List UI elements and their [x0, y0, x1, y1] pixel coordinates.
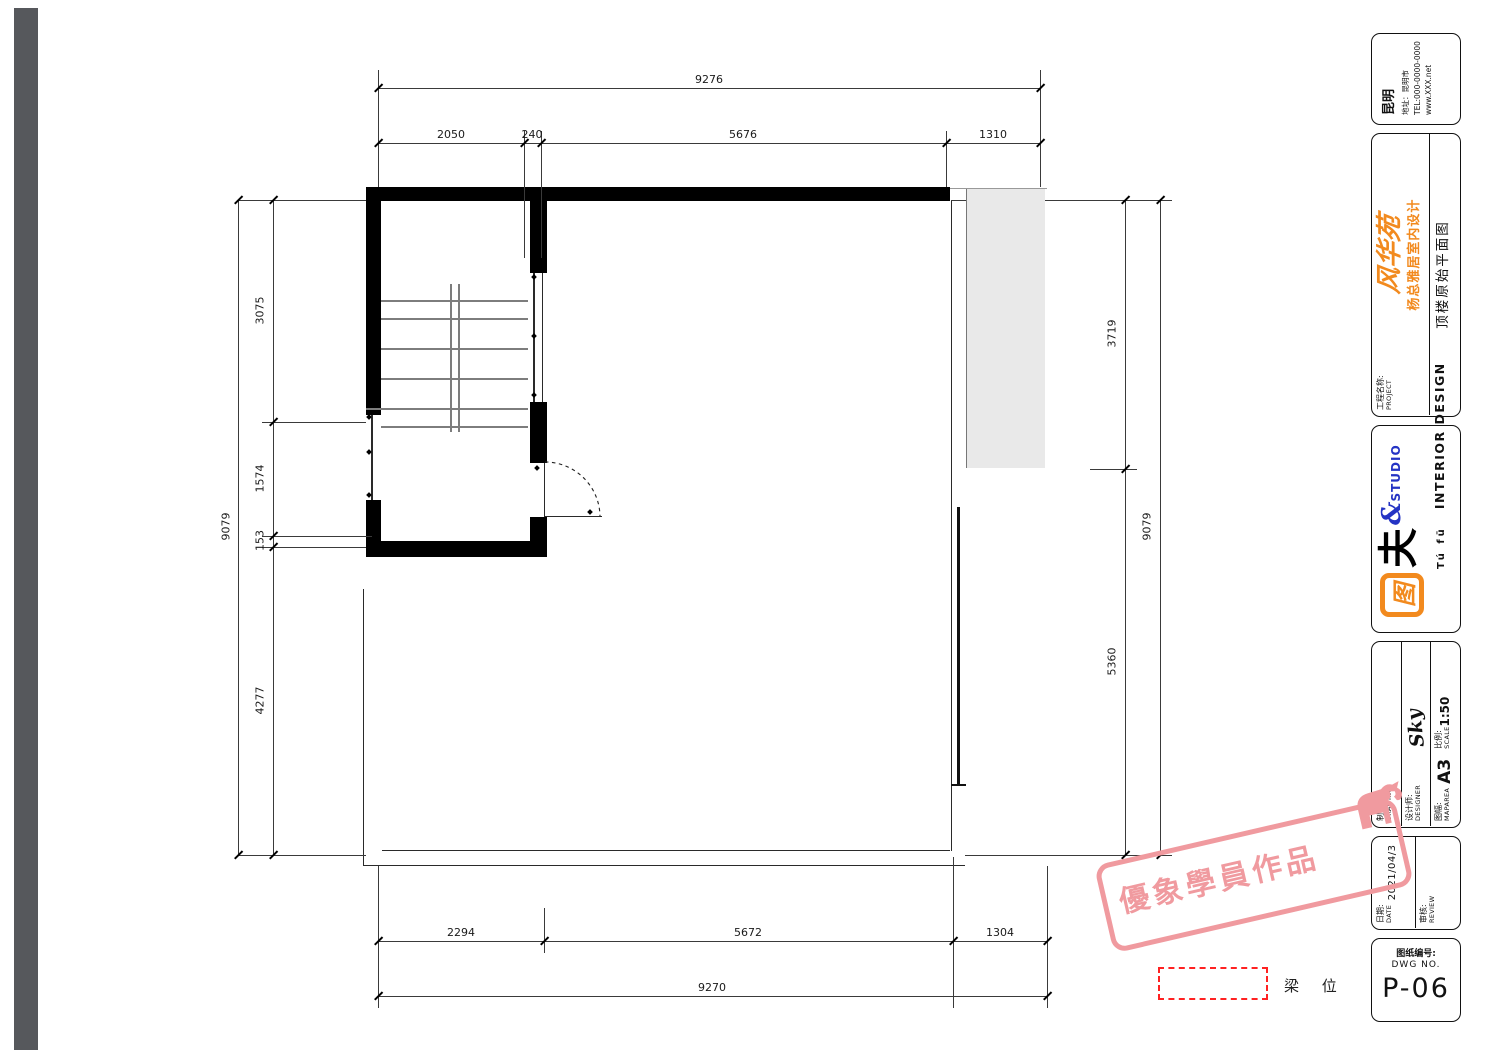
- scale-label: 比例:SCALE: [1431, 726, 1459, 753]
- scale-value: 1:50: [1438, 697, 1459, 727]
- stair-line: [381, 426, 528, 428]
- dim-top-seg: 1310: [963, 128, 1023, 141]
- dwg-no-value: P-06: [1372, 973, 1460, 1004]
- dim-right-overall: 9079: [1141, 497, 1154, 557]
- plan-line: [951, 784, 966, 786]
- dimension-line: [378, 88, 1041, 89]
- company-web: www.XXX.net: [1423, 34, 1435, 115]
- wall-segment: [366, 500, 381, 541]
- project-name: 杨总雅居室内设计: [1403, 134, 1422, 375]
- wall-segment: [366, 187, 950, 201]
- dimension-line: [953, 857, 954, 1008]
- plan-line: [951, 201, 952, 851]
- dimension-line: [1160, 200, 1161, 855]
- date-label: 日期:DATE: [1373, 904, 1415, 928]
- dim-left-seg: 1574: [254, 449, 267, 509]
- stair-line: [381, 300, 528, 302]
- dimension-line: [378, 143, 1041, 144]
- plan-line: [371, 415, 373, 500]
- company-address: 地址：昆明市: [1400, 34, 1412, 115]
- dimension-line: [238, 200, 239, 855]
- ampersand-glyph: &: [1377, 502, 1407, 525]
- dim-left-overall: 9079: [220, 497, 233, 557]
- dimension-line: [524, 131, 525, 258]
- dimension-line: [1090, 469, 1137, 470]
- logo-box: 图 夫 &STUDIO Tú fū INTERIOR DESIGN: [1371, 425, 1461, 633]
- dim-bottom-overall: 9270: [682, 981, 742, 994]
- dimension-line: [238, 200, 366, 201]
- maparea-value: A3: [1435, 759, 1459, 784]
- stair-line: [366, 408, 528, 410]
- plan-line: [382, 850, 950, 851]
- dimension-line: [1047, 866, 1048, 1008]
- dimension-line: [541, 131, 542, 258]
- dwg-no-label-cn: 图纸编号:: [1372, 946, 1460, 959]
- stair-line: [381, 348, 528, 350]
- dimension-line: [378, 941, 1048, 942]
- wall-segment: [530, 402, 547, 463]
- drawing-sheet: 9276 2050 240 5676 1310 9079 3075 1574 1…: [0, 0, 1500, 1061]
- maparea-label: 图幅:MAPAREA: [1431, 788, 1459, 826]
- stair-line: [450, 284, 452, 432]
- wall-segment: [366, 541, 547, 557]
- beam-legend-swatch: [1158, 967, 1268, 1000]
- dimension-line: [238, 855, 366, 856]
- dim-right-seg: 5360: [1106, 632, 1119, 692]
- dim-left-seg: 4277: [254, 671, 267, 731]
- void-area: [966, 189, 1045, 468]
- dim-top-seg: 5676: [713, 128, 773, 141]
- wall-segment: [530, 517, 547, 557]
- dwg-no-label-en: DWG NO.: [1372, 960, 1460, 970]
- logo-pinyin: Tú fū: [1436, 526, 1447, 569]
- dim-left-seg: 3075: [254, 281, 267, 341]
- plan-line: [363, 865, 965, 866]
- company-tel: TEL:000-0000-0000: [1412, 34, 1424, 115]
- dim-top-seg: 240: [502, 128, 562, 141]
- dimension-line: [1125, 200, 1126, 855]
- dim-top-overall: 9276: [679, 73, 739, 86]
- company-box: 昆明 地址：昆明市 TEL:000-0000-0000 www.XXX.net: [1371, 33, 1461, 125]
- dimension-line: [262, 547, 366, 548]
- dim-bottom-seg: 2294: [431, 926, 491, 939]
- dimension-line: [262, 422, 366, 423]
- dim-bottom-seg: 5672: [718, 926, 778, 939]
- plan-line: [957, 507, 960, 785]
- logo-glyph: 夫: [1373, 528, 1429, 568]
- logo-mark-icon: 图: [1380, 573, 1424, 617]
- dimension-line: [378, 866, 379, 1008]
- beam-legend-label: 梁 位: [1284, 975, 1346, 996]
- plan-line: [542, 273, 544, 402]
- dimension-line: [262, 536, 372, 537]
- stair-line: [381, 378, 528, 380]
- opening-mark: [534, 465, 540, 471]
- stair-line: [381, 318, 528, 320]
- dim-top-seg: 2050: [421, 128, 481, 141]
- wall-segment: [530, 201, 547, 273]
- company-name: 昆明: [1378, 34, 1397, 115]
- review-label: 审核:REVIEW: [1416, 896, 1458, 928]
- project-label: 工程名称: PROJECT: [1373, 375, 1429, 415]
- door-swing-arc: [544, 461, 604, 519]
- plan-line: [363, 589, 364, 866]
- dim-right-seg: 3719: [1106, 304, 1119, 364]
- brand-calligraphy: 风华苑: [1375, 132, 1405, 378]
- dim-left-seg: 153: [254, 511, 267, 571]
- dwg-no-box: 图纸编号: DWG NO. P-06: [1371, 938, 1461, 1022]
- dimension-line: [378, 996, 1048, 997]
- dimension-line: [544, 908, 545, 953]
- project-box: 工程名称: PROJECT 风华苑 杨总雅居室内设计 顶楼原始平面图: [1371, 133, 1461, 417]
- dimension-line: [273, 200, 274, 855]
- wall-segment: [366, 201, 381, 415]
- dim-bottom-seg: 1304: [970, 926, 1030, 939]
- stair-line: [458, 284, 460, 432]
- interior-design-label: INTERIOR DESIGN: [1432, 362, 1447, 509]
- designer-value: Sky: [1403, 708, 1430, 748]
- studio-label: STUDIO: [1389, 444, 1403, 501]
